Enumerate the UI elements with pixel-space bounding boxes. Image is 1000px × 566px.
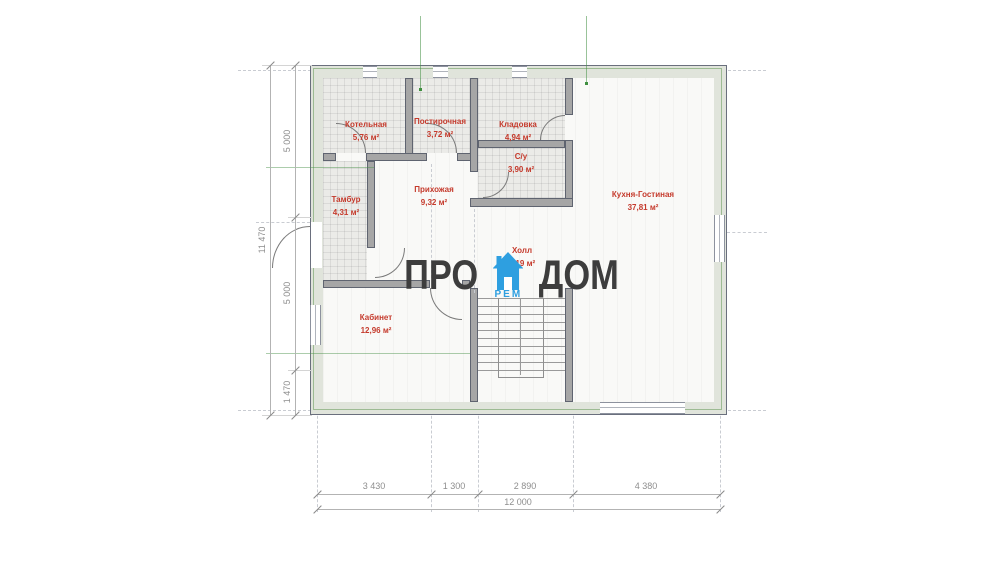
- guide-line: [586, 16, 587, 84]
- guide-dot: [585, 82, 588, 85]
- dimension-label-total-height: 11 470: [257, 227, 267, 254]
- room-label-kitchen-living: Кухня-Гостиная 37,81 м²: [612, 189, 674, 215]
- room-name: Тамбур: [331, 194, 360, 207]
- wall: [323, 153, 336, 161]
- guide-line: [420, 16, 421, 90]
- entrance-opening: [311, 222, 322, 268]
- axis-line: [256, 222, 310, 223]
- house-icon: РЕМ: [493, 252, 523, 300]
- floor-vestibule: [323, 161, 367, 280]
- guide-dot: [419, 88, 422, 91]
- room-name: Кладовка: [499, 119, 537, 132]
- dimension-line: [317, 509, 720, 510]
- room-name: Котельная: [345, 119, 387, 132]
- wall: [367, 161, 375, 248]
- house-icon-graphic: [493, 252, 523, 290]
- window: [512, 66, 527, 78]
- room-name: Постирочная: [414, 116, 466, 129]
- floor-plan-page: 11 470 5 000 5 000 1 470 3 430 1 300 2 8…: [0, 0, 1000, 566]
- window: [310, 305, 321, 345]
- room-area: 4,94 м²: [499, 132, 537, 145]
- extension-line: [288, 217, 312, 218]
- room-area: 3,72 м²: [414, 129, 466, 142]
- guide-line: [266, 167, 374, 168]
- room-label-bathroom: С/у 3,90 м²: [508, 151, 534, 177]
- axis-line: [317, 406, 318, 512]
- room-name: Прихожая: [414, 184, 453, 197]
- room-area: 4,31 м²: [331, 207, 360, 220]
- axis-line: [478, 406, 479, 512]
- room-area: 3,90 м²: [508, 164, 534, 177]
- dimension-label: 2 890: [514, 481, 537, 491]
- room-name: Кабинет: [360, 312, 392, 325]
- dimension-label-total-width: 12 000: [504, 497, 532, 507]
- watermark-sub-text: РЕМ: [494, 289, 522, 300]
- wall: [565, 288, 573, 402]
- window: [433, 66, 448, 78]
- dimension-label: 1 470: [282, 381, 292, 404]
- wall: [457, 153, 471, 161]
- room-area: 5,76 м²: [345, 132, 387, 145]
- dimension-line: [295, 65, 296, 415]
- wall: [405, 78, 413, 156]
- extension-line: [288, 370, 312, 371]
- room-area: 37,81 м²: [612, 202, 674, 215]
- watermark-text-left: ПРО: [404, 254, 478, 296]
- dimension-label: 5 000: [282, 282, 292, 305]
- guide-line: [266, 353, 470, 354]
- axis-line: [573, 406, 574, 512]
- wall: [470, 288, 478, 402]
- wall: [565, 78, 573, 115]
- dimension-label: 3 430: [363, 481, 386, 491]
- axis-line: [431, 406, 432, 512]
- room-label-office: Кабинет 12,96 м²: [360, 312, 392, 338]
- room-label-storage: Кладовка 4,94 м²: [499, 119, 537, 145]
- window: [714, 215, 725, 262]
- room-area: 12,96 м²: [360, 325, 392, 338]
- watermark: ПРО РЕМ ДОМ: [396, 247, 628, 303]
- dimension-line: [270, 65, 271, 415]
- wall: [366, 153, 427, 161]
- axis-line: [727, 232, 767, 233]
- staircase-void: [498, 298, 544, 378]
- room-name: С/у: [508, 151, 534, 164]
- dimension-line: [317, 494, 720, 495]
- room-label-laundry: Постирочная 3,72 м²: [414, 116, 466, 142]
- window: [363, 66, 377, 78]
- dimension-label: 5 000: [282, 130, 292, 153]
- wall: [565, 140, 573, 207]
- room-area: 9,32 м²: [414, 197, 453, 210]
- dimension-label: 1 300: [443, 481, 466, 491]
- wall: [470, 78, 478, 172]
- axis-line: [720, 406, 721, 512]
- watermark-text-right: ДОМ: [539, 254, 619, 296]
- window: [600, 402, 685, 414]
- room-label-hallway: Прихожая 9,32 м²: [414, 184, 453, 210]
- wall: [470, 198, 573, 207]
- dimension-label: 4 380: [635, 481, 658, 491]
- room-label-vestibule: Тамбур 4,31 м²: [331, 194, 360, 220]
- entrance-door-arc: [272, 226, 310, 268]
- room-label-boiler-room: Котельная 5,76 м²: [345, 119, 387, 145]
- room-name: Кухня-Гостиная: [612, 189, 674, 202]
